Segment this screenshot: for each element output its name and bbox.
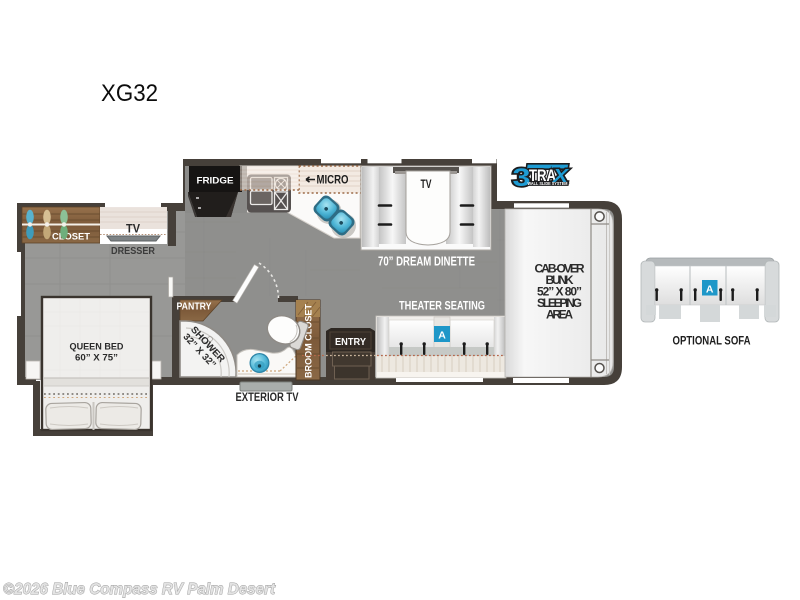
svg-text:A: A (706, 284, 714, 296)
svg-text:OPTIONAL SOFA: OPTIONAL SOFA (673, 334, 751, 348)
svg-text:CLOSET: CLOSET (52, 232, 90, 243)
svg-text:WALL SLIDE SYSTEM: WALL SLIDE SYSTEM (528, 181, 568, 186)
svg-text:DRESSER: DRESSER (111, 246, 156, 257)
svg-text:©2026 Blue Compass RV Palm Des: ©2026 Blue Compass RV Palm Desert (3, 581, 276, 598)
svg-text:TV: TV (126, 222, 140, 236)
svg-text:60” X 75”: 60” X 75” (75, 353, 118, 364)
svg-text:ENTRY: ENTRY (335, 337, 366, 348)
svg-text:QUEEN BED: QUEEN BED (70, 342, 124, 353)
svg-text:XG32: XG32 (101, 80, 158, 107)
svg-text:A: A (438, 330, 446, 342)
svg-text:BROOM CLOSET: BROOM CLOSET (304, 303, 314, 378)
svg-text:AREA: AREA (546, 308, 573, 322)
svg-text:TV: TV (421, 177, 432, 191)
svg-text:THEATER SEATING: THEATER SEATING (399, 301, 485, 313)
svg-text:3: 3 (513, 164, 531, 192)
svg-text:EXTERIOR TV: EXTERIOR TV (236, 390, 299, 404)
svg-text:PANTRY: PANTRY (177, 302, 212, 313)
svg-text:MICRO: MICRO (317, 175, 349, 187)
svg-text:FRIDGE: FRIDGE (197, 176, 234, 187)
svg-text:70” DREAM DINETTE: 70” DREAM DINETTE (378, 255, 475, 269)
